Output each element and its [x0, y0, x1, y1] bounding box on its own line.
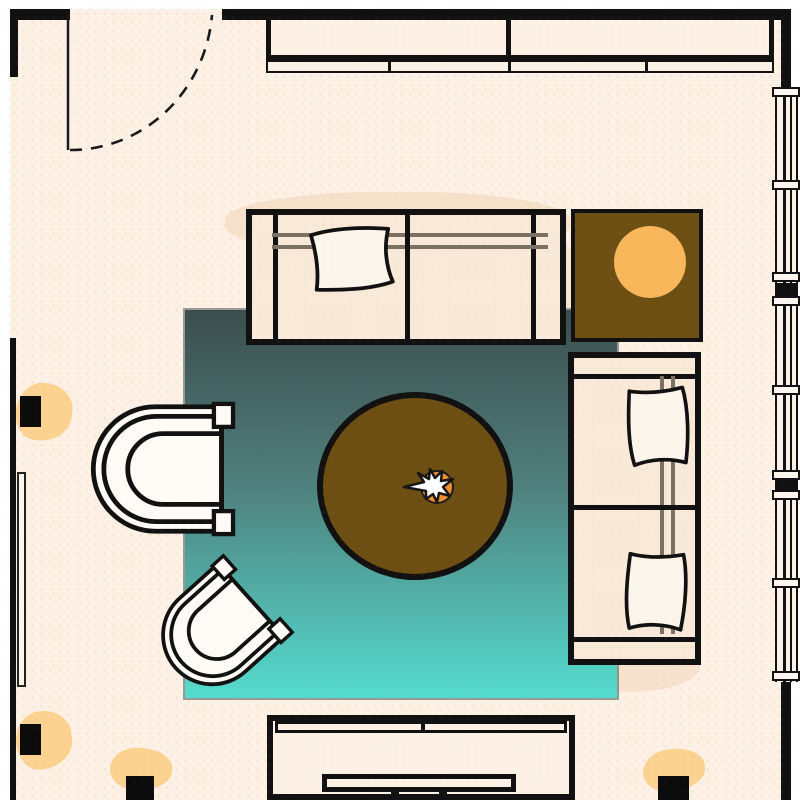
wall-right-lower — [781, 682, 791, 800]
sideboard-rail-divider — [508, 60, 511, 73]
console-strip-divider — [421, 724, 425, 730]
wall-sconce[interactable] — [126, 776, 154, 800]
tv-stand-leg — [439, 792, 447, 800]
window-sill-cap — [772, 578, 800, 588]
media-console[interactable] — [267, 715, 575, 800]
pillow-outline — [628, 387, 689, 465]
window-sill-cap — [772, 87, 800, 97]
pillow-outline — [311, 226, 393, 292]
window-sill-cap — [772, 671, 800, 681]
sideboard-rail-divider — [388, 60, 391, 73]
wall-top-main — [222, 9, 790, 20]
window-sill-cap — [772, 470, 800, 480]
floor-plan-canvas — [0, 0, 800, 800]
radiator-panel[interactable] — [17, 472, 26, 687]
table-lamp[interactable] — [614, 226, 686, 298]
star-leaves — [404, 469, 453, 502]
wall-left-upper — [10, 9, 18, 77]
throw-pillow[interactable] — [623, 377, 692, 473]
wall-sconce[interactable] — [658, 776, 689, 800]
window-sill-cap — [772, 180, 800, 190]
window-sill-cap — [772, 272, 800, 282]
entry-door[interactable] — [58, 8, 233, 163]
sofa-seat-divider — [574, 505, 695, 510]
sofa-right[interactable] — [568, 352, 701, 665]
wall-left-lower — [10, 338, 16, 800]
wall-right-upper — [781, 9, 791, 90]
sofa-seat-divider — [405, 215, 410, 339]
sofa-main[interactable] — [246, 209, 566, 345]
sideboard-divider-line — [506, 20, 511, 60]
window-wall-separator — [777, 480, 796, 490]
side-table[interactable] — [571, 209, 703, 342]
sideboard-rail-divider — [645, 60, 648, 73]
door-swing-arc — [70, 15, 212, 150]
chair-armrest-cap — [214, 404, 233, 427]
chair-armrest-cap — [214, 511, 233, 534]
window-sill-cap — [772, 385, 800, 395]
centerpiece-plant-icon — [401, 464, 465, 508]
console-back-strip — [275, 721, 567, 733]
wall-sconce[interactable] — [20, 724, 41, 755]
wall-sconce[interactable] — [20, 396, 41, 427]
armchair-1[interactable] — [96, 402, 238, 536]
tv-screen[interactable] — [322, 774, 516, 792]
window-sill-cap — [772, 296, 800, 306]
window-wall-separator — [777, 283, 796, 296]
sideboard-front-rail — [266, 60, 774, 73]
sideboard[interactable] — [266, 20, 774, 60]
window-sill-cap — [772, 490, 800, 500]
throw-pillow[interactable] — [621, 541, 692, 638]
tv-stand-leg — [391, 792, 399, 800]
chair-outline — [93, 407, 221, 531]
pillow-outline — [625, 552, 688, 631]
throw-pillow[interactable] — [301, 222, 401, 296]
